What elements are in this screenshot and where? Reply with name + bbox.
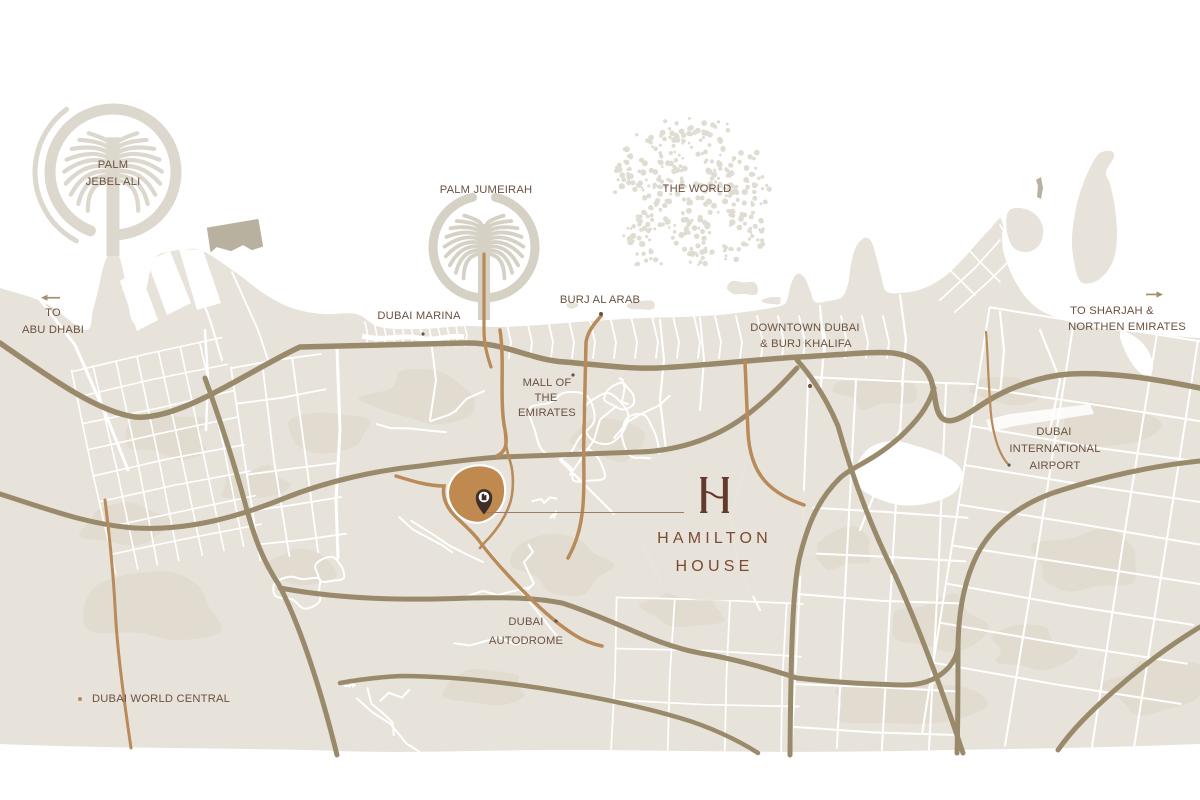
svg-text:MALL OF: MALL OF [523,377,572,389]
svg-text:DUBAI: DUBAI [1036,426,1071,438]
svg-text:AUTODROME: AUTODROME [489,635,563,647]
svg-text:EMIRATES: EMIRATES [518,407,576,419]
svg-text:BURJ AL ARAB: BURJ AL ARAB [560,294,640,306]
svg-text:DUBAI WORLD CENTRAL: DUBAI WORLD CENTRAL [92,693,230,705]
svg-text:NORTHEN EMIRATES: NORTHEN EMIRATES [1068,321,1186,333]
svg-text:AIRPORT: AIRPORT [1030,460,1081,472]
svg-text:PALM JUMEIRAH: PALM JUMEIRAH [440,184,533,196]
svg-text:TO: TO [45,307,61,319]
svg-text:& BURJ KHALIFA: & BURJ KHALIFA [760,338,852,350]
svg-text:THE WORLD: THE WORLD [663,183,732,195]
svg-text:DOWNTOWN DUBAI: DOWNTOWN DUBAI [750,322,860,334]
svg-text:HAMILTON: HAMILTON [657,530,772,547]
svg-text:INTERNATIONAL: INTERNATIONAL [1009,443,1100,455]
svg-text:TO SHARJAH &: TO SHARJAH & [1070,305,1154,317]
svg-text:PALM: PALM [98,159,128,171]
svg-text:DUBAI: DUBAI [508,616,543,628]
svg-text:ABU DHABI: ABU DHABI [22,324,84,336]
svg-text:DUBAI MARINA: DUBAI MARINA [377,310,461,322]
svg-text:JEBEL ALI: JEBEL ALI [86,176,141,188]
svg-text:THE: THE [535,392,558,404]
svg-text:HOUSE: HOUSE [676,558,754,575]
